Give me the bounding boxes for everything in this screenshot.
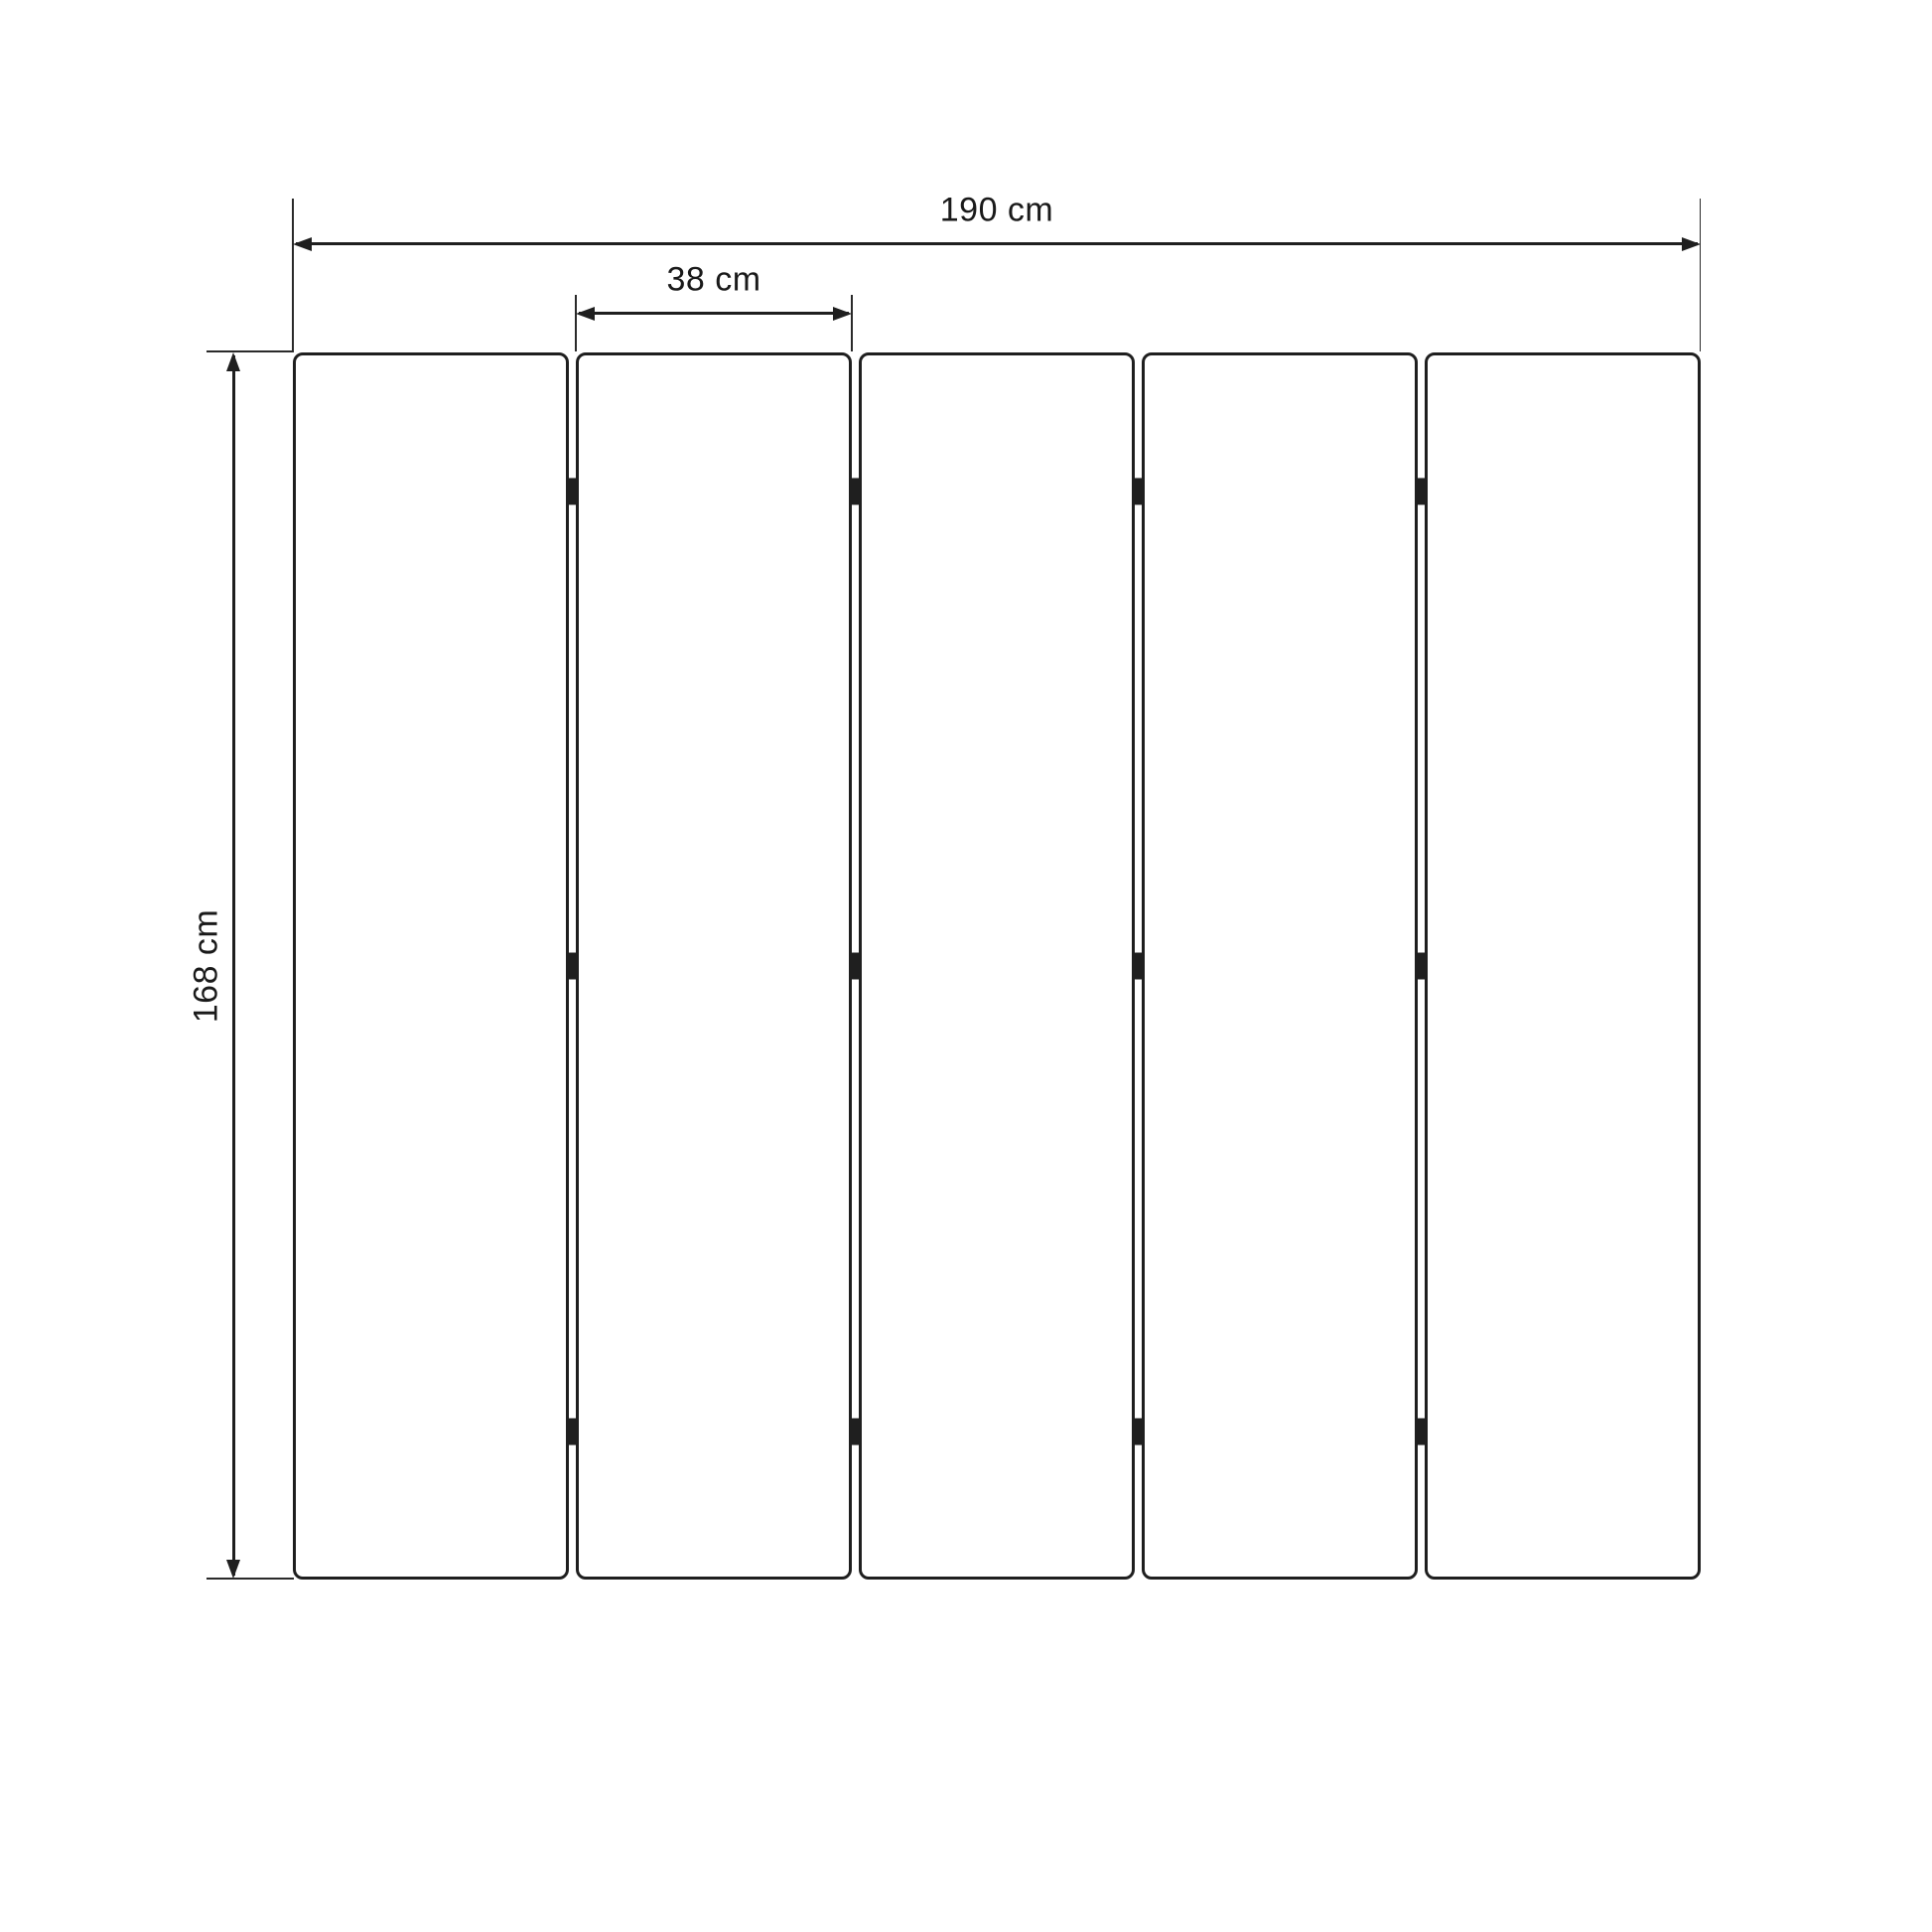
arrowhead-up-icon [226,352,240,371]
dimension-line-total-width [296,242,1698,245]
dimension-label-total-width: 190 cm [940,192,1054,230]
hinge-mark [568,479,577,505]
hinge-mark [1134,1419,1143,1446]
hinge-mark [851,953,860,980]
extension-line-total-width-left [292,199,294,351]
screen-panel-1 [293,352,569,1580]
dimension-line-panel-width [579,312,849,315]
hinge-mark [1417,1419,1426,1446]
dimension-label-panel-width: 38 cm [666,261,760,300]
extension-line-total-width-right [1700,199,1702,351]
arrowhead-right-icon [833,307,852,321]
diagram-canvas: 190 cm 38 cm 168 cm [0,0,1932,1932]
extension-line-panel-width-left [575,295,577,351]
hinge-mark [1417,953,1426,980]
hinge-mark [851,1419,860,1446]
extension-line-panel-width-right [851,295,853,351]
hinge-mark [568,953,577,980]
screen-panel-3 [859,352,1135,1580]
hinge-mark [1134,953,1143,980]
extension-line-height-bottom [207,1578,294,1580]
screen-panel-4 [1142,352,1418,1580]
hinge-mark [1417,479,1426,505]
arrowhead-down-icon [226,1560,240,1579]
dimension-line-height [232,355,235,1576]
hinge-mark [1134,479,1143,505]
arrowhead-right-icon [1682,237,1701,251]
extension-line-height-top [207,350,294,352]
hinge-mark [851,479,860,505]
screen-panel-5 [1425,352,1701,1580]
arrowhead-left-icon [293,237,312,251]
hinge-mark [568,1419,577,1446]
arrowhead-left-icon [576,307,595,321]
dimension-label-height: 168 cm [188,909,226,1024]
screen-panel-2 [576,352,852,1580]
